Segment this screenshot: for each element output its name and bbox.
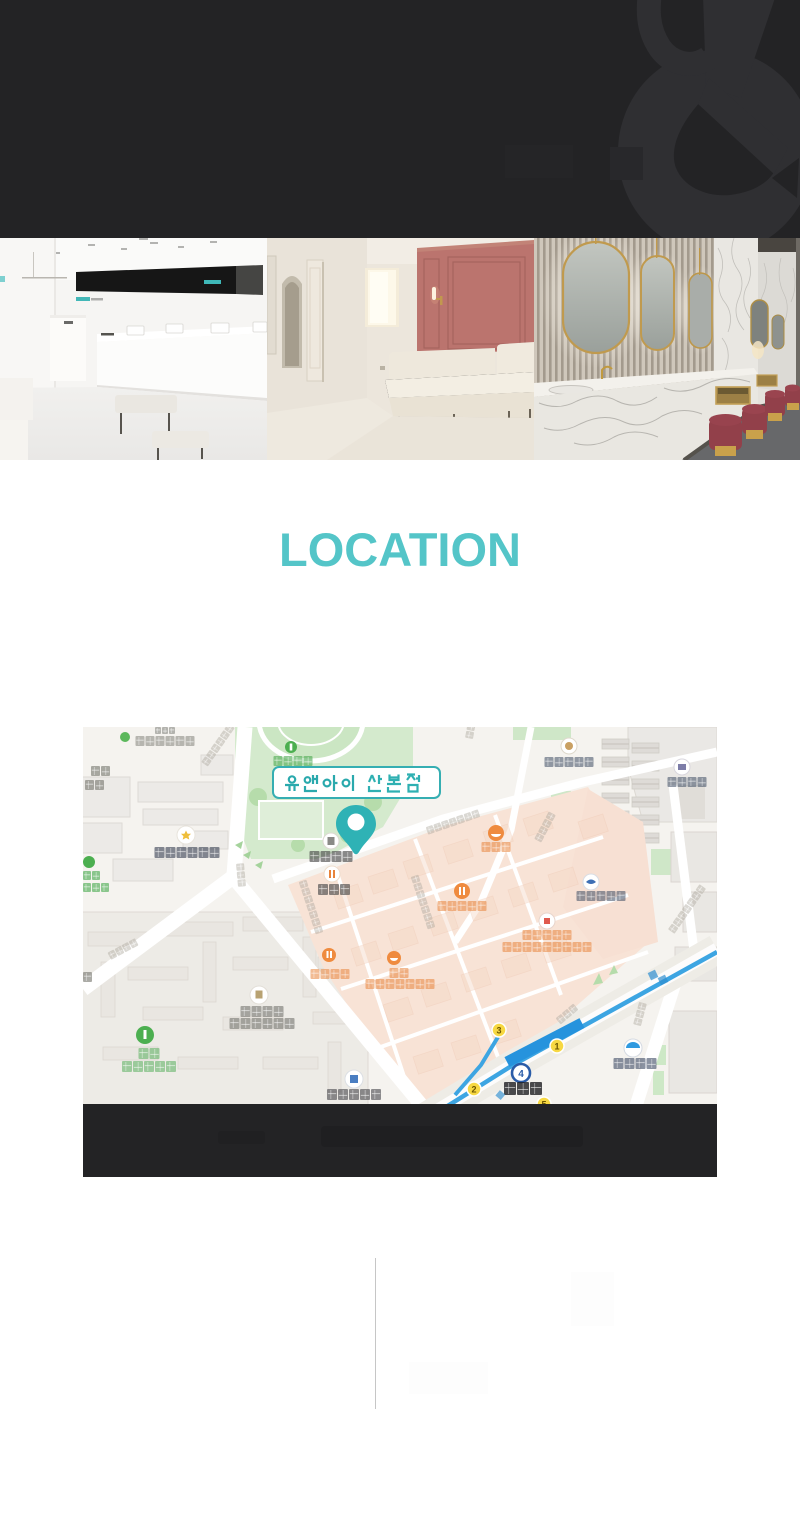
- svg-text:2: 2: [471, 1085, 476, 1095]
- svg-text:3: 3: [496, 1026, 501, 1036]
- svg-text:1: 1: [554, 1042, 559, 1052]
- svg-text:4: 4: [518, 1069, 524, 1080]
